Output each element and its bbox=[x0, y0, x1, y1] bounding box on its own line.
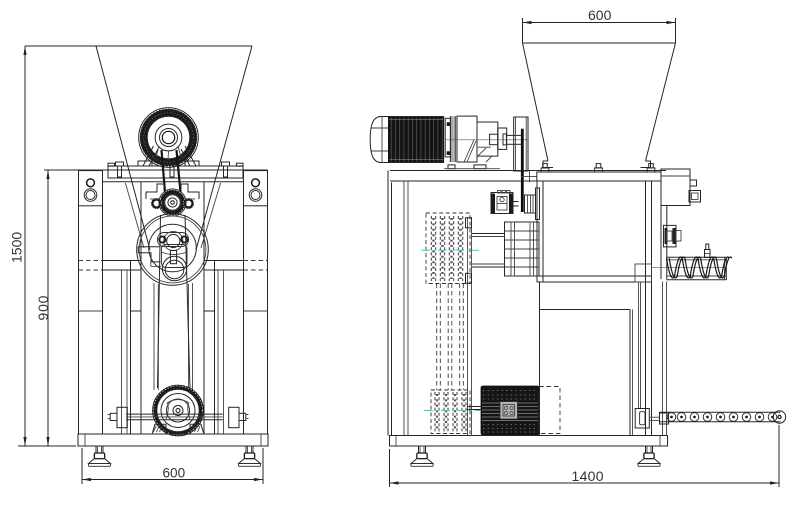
svg-text:900: 900 bbox=[35, 295, 51, 321]
svg-text:1400: 1400 bbox=[572, 468, 604, 484]
svg-text:600: 600 bbox=[588, 7, 612, 23]
svg-text:1500: 1500 bbox=[9, 232, 25, 263]
svg-text:600: 600 bbox=[163, 466, 186, 481]
